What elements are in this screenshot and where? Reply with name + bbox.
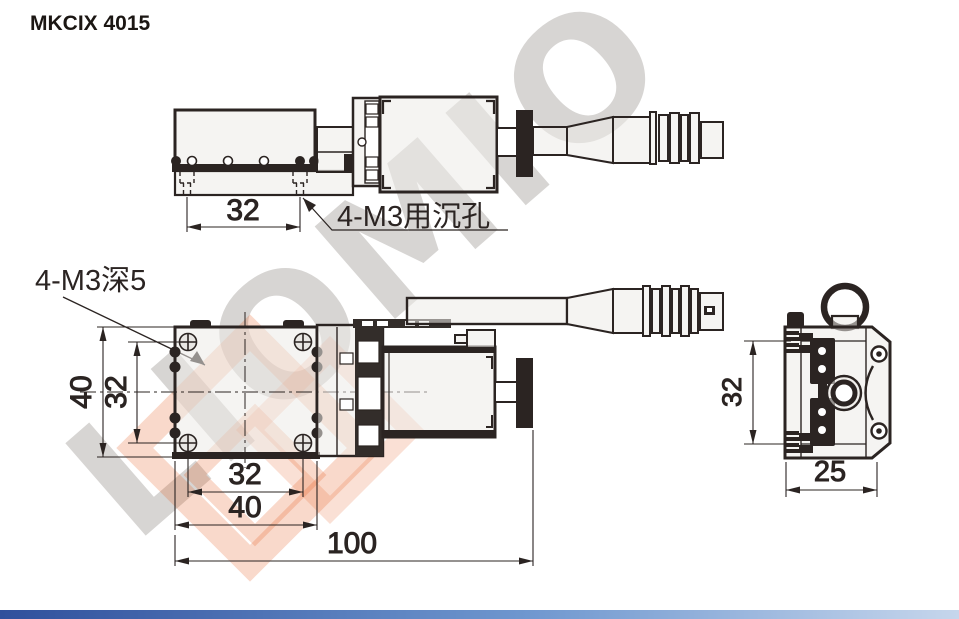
top-end-dot (171, 156, 181, 166)
front-top-bump (190, 320, 211, 328)
top-hole (188, 157, 197, 166)
footer-accent-bar (0, 610, 959, 619)
dim-front-height: 40 (65, 375, 98, 408)
front-connector-taper (567, 289, 613, 333)
top-connector-rings (650, 112, 699, 164)
front-cable-bracket-nub (455, 335, 467, 343)
top-hole-filled (295, 156, 305, 166)
dim-top-hole-spacing: 32 (226, 194, 259, 227)
dim-front-hole-spacing-h: 32 (228, 458, 261, 491)
dim-front-hole-spacing-v: 32 (100, 375, 133, 408)
front-view: 4-M3深5 (35, 265, 723, 566)
front-motor-body (383, 347, 495, 437)
dim-front-width: 40 (228, 491, 261, 524)
counterbore-label: 4-M3用沉孔 (337, 200, 490, 233)
front-top-bump (283, 320, 304, 328)
front-cable-bracket (467, 330, 495, 348)
dim-overall-length: 100 (327, 527, 377, 560)
tapped-hole-label: 4-M3深5 (35, 265, 146, 297)
dim-side-depth: 25 (814, 456, 846, 488)
front-connector-barrel (613, 289, 643, 333)
top-hole (224, 157, 233, 166)
top-base-strip (175, 171, 353, 195)
drawing-page: LIOMIO MKCIX 4015 (0, 0, 959, 619)
top-hole (260, 157, 269, 166)
technical-drawing: 32 4-M3用沉孔 4-M3深5 (0, 0, 959, 619)
front-knob (516, 358, 533, 428)
top-shaft (497, 128, 517, 156)
front-cable-bar (407, 298, 567, 324)
dim-side-height: 32 (717, 377, 747, 407)
side-shaft-hole (833, 382, 855, 404)
top-connector-tip (701, 122, 723, 158)
top-gearbox-pin (358, 138, 366, 146)
top-view: 32 4-M3用沉孔 (171, 97, 723, 233)
top-connector-taper (567, 117, 613, 163)
front-shaft (495, 382, 518, 402)
front-motor-bottom-band (383, 430, 495, 437)
front-connector-rings (643, 286, 698, 336)
top-connector-barrel (613, 117, 650, 163)
page-title: MKCIX 4015 (30, 12, 150, 36)
top-knob (516, 110, 533, 177)
front-connector-key-slot (707, 308, 712, 312)
top-cable (533, 127, 567, 155)
side-view: 32 25 (717, 286, 890, 497)
top-motor-body (380, 97, 497, 192)
top-rail-clamp (344, 154, 353, 171)
